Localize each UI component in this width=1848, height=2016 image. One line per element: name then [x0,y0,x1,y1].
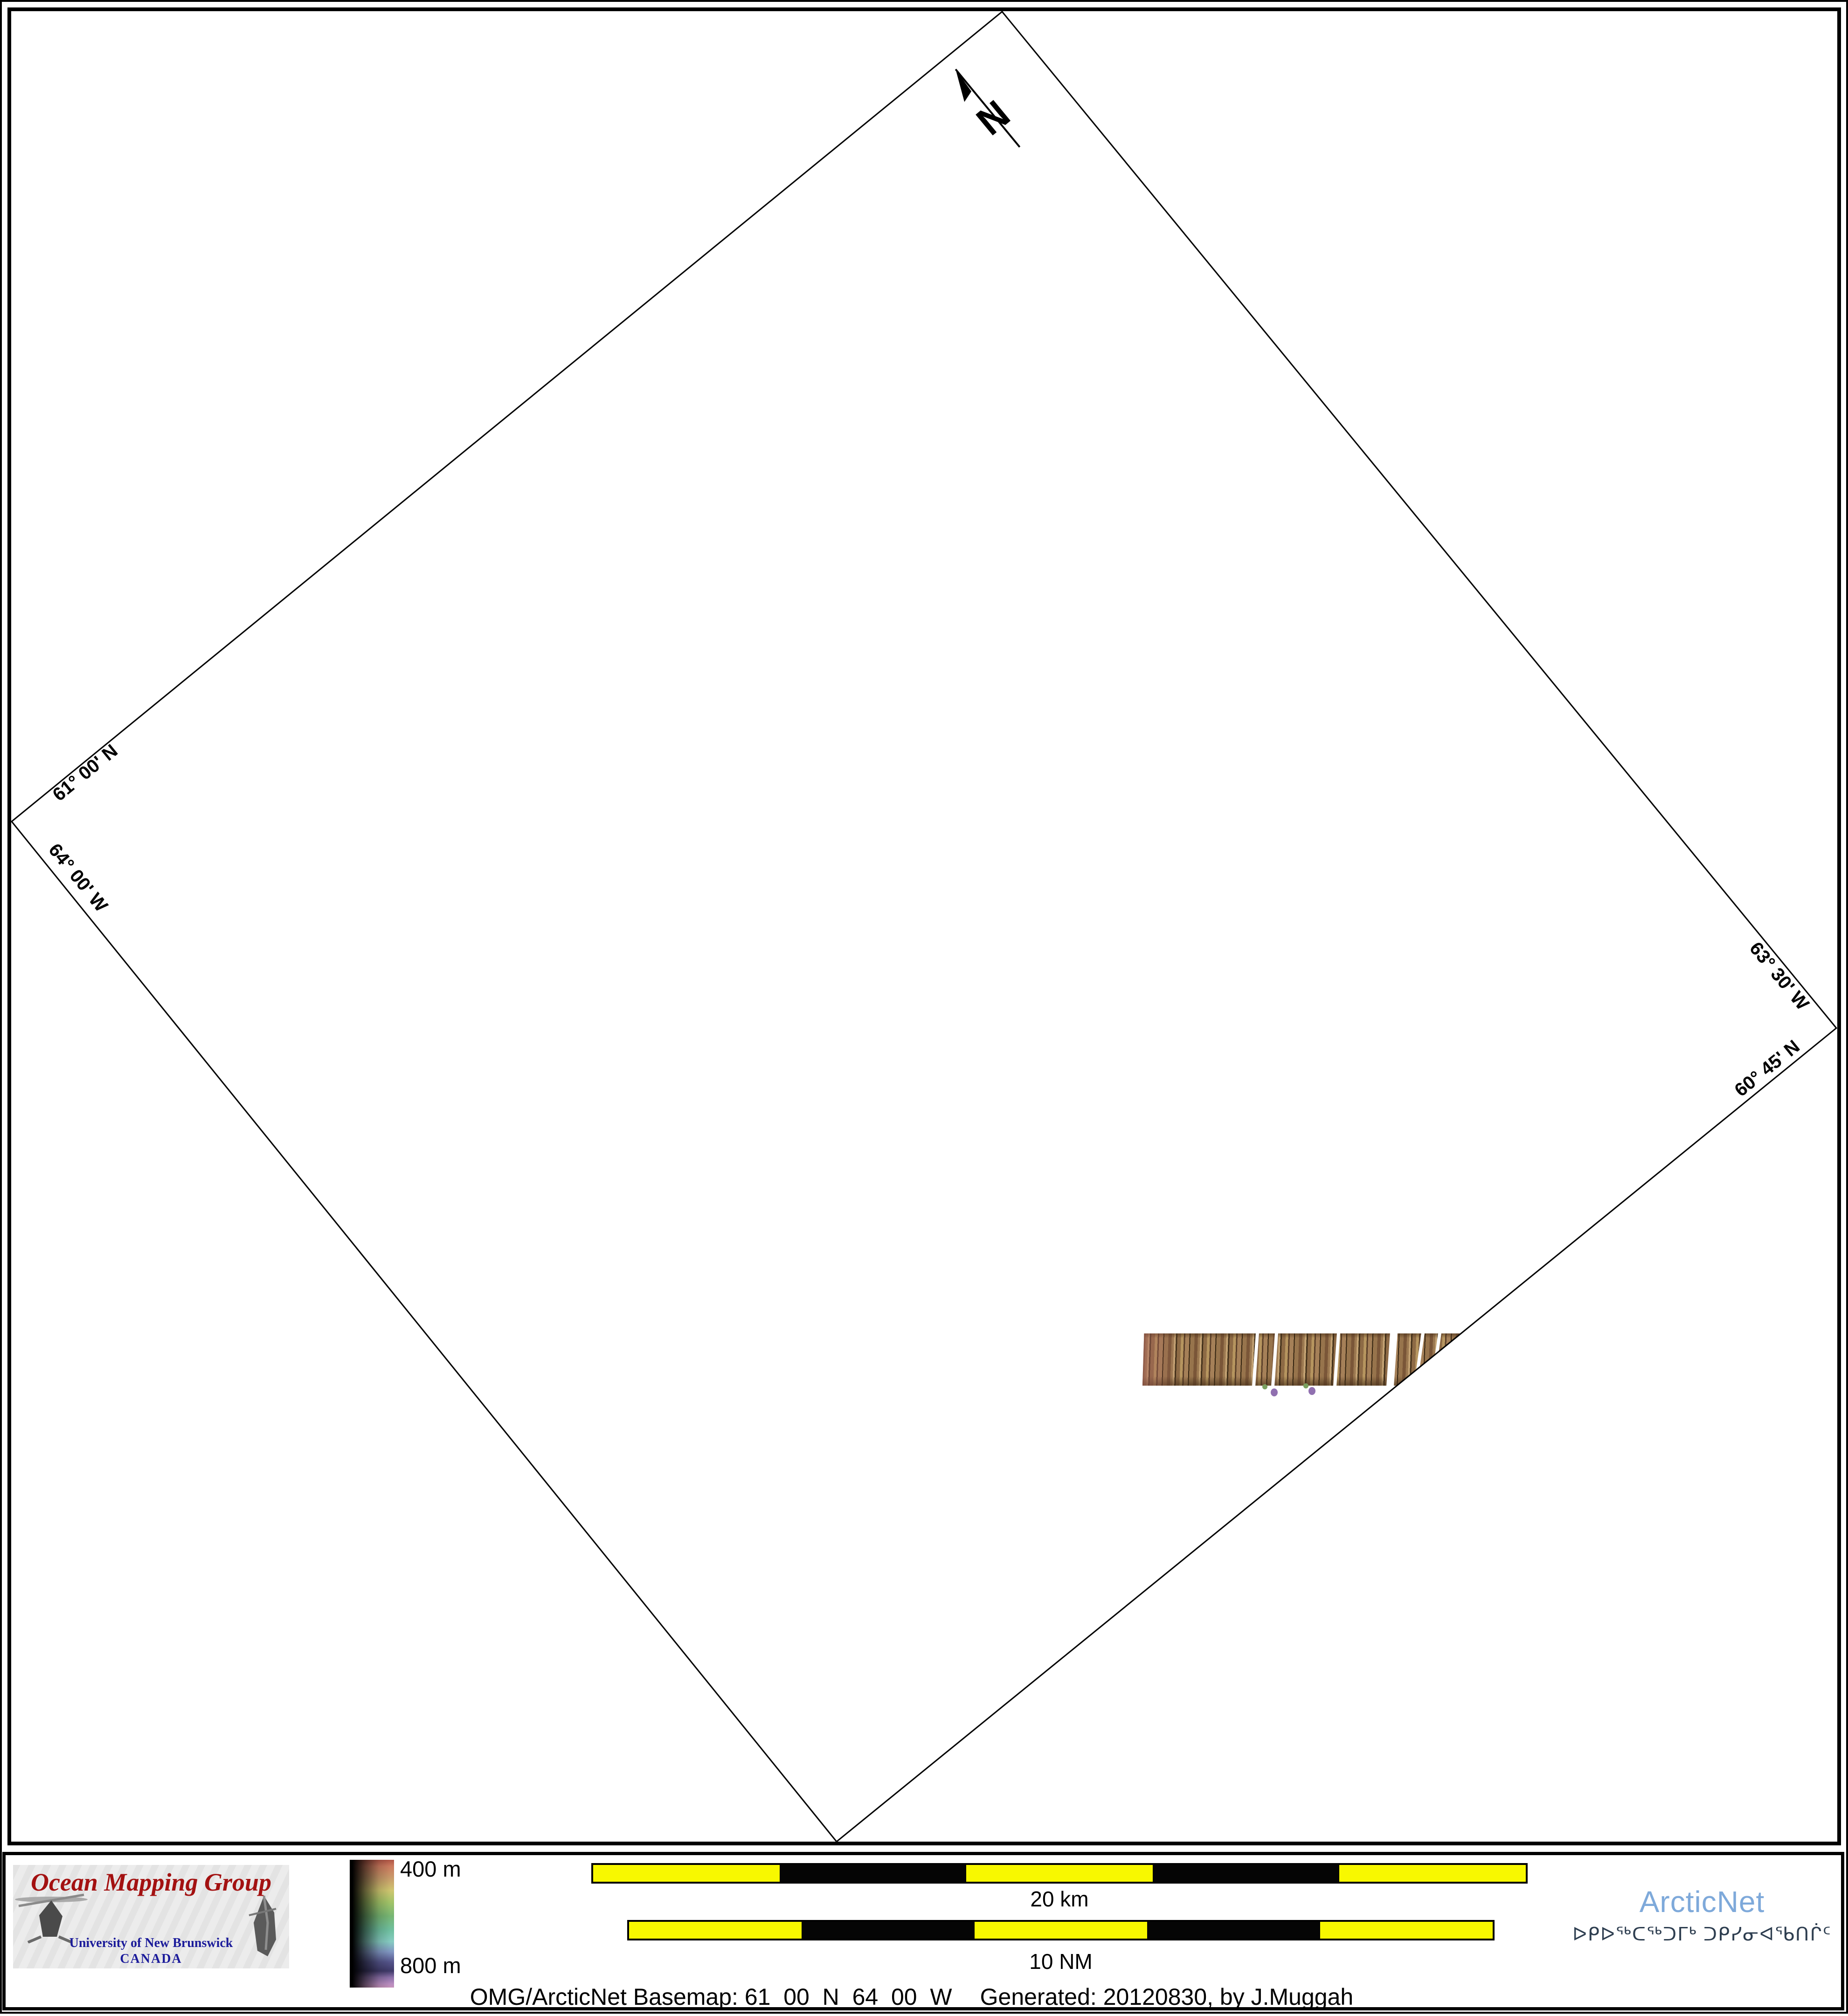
basemap-page: N 61° 00' N 64° 00' W 63° 30' W 60° 45' … [0,0,1848,2016]
swath-gap [1333,1332,1340,1388]
scalebar-segment [966,1865,1153,1882]
arcticnet-logo: ArcticNet ᐅᑭᐅᖅᑕᖅᑐᒥᒃ ᑐᑭᓯᓂᐊᖃᑎᒌᑦ [1553,1885,1848,1945]
caption: OMG/ArcticNet Basemap: 61_00_N_64_00_W G… [420,1983,1404,2010]
sounding-dot-green [1303,1383,1308,1388]
scalebar-segment [593,1865,780,1882]
omg-logo-country: CANADA [13,1952,289,1967]
scalebar-segment [1153,1865,1339,1882]
map-frame [7,7,1841,1845]
omg-logo-university: University of New Brunswick [13,1936,289,1951]
arcticnet-logo-inuktitut: ᐅᑭᐅᖅᑕᖅᑐᒥᒃ ᑐᑭᓯᓂᐊᖃᑎᒌᑦ [1553,1924,1848,1945]
caption-generated: Generated: 20120830, by J.Muggah [980,1983,1354,2010]
caption-basemap-id: OMG/ArcticNet Basemap: 61_00_N_64_00_W [470,1983,952,2010]
depth-label-800m: 800 m [400,1953,461,1978]
scalebar-segment [1339,1865,1526,1882]
scalebar-segment [975,1922,1147,1939]
omg-logo: Ocean Mapping Group University of New Br… [13,1865,289,1968]
depth-colorbar [350,1860,394,1988]
sounding-dot-green [1262,1384,1267,1389]
swath-gap [1386,1332,1398,1388]
scalebar-label-20km: 20 km [591,1886,1528,1912]
scalebar-segment [802,1922,974,1939]
scalebar-segment [1320,1922,1493,1939]
swath-gap [1271,1332,1278,1388]
swath-gap [1252,1332,1259,1388]
scalebar-segment [629,1922,802,1939]
scalebar-label-10nm: 10 NM [627,1949,1495,1974]
sounding-dot-purple [1308,1387,1315,1395]
depth-label-400m: 400 m [400,1856,461,1882]
sounding-dot-purple [1271,1388,1278,1396]
arcticnet-logo-name: ArcticNet [1553,1885,1848,1919]
scalebar-20km [591,1863,1528,1884]
scalebar-10nm [627,1920,1495,1940]
scalebar-segment [1147,1922,1320,1939]
scalebar-segment [780,1865,966,1882]
